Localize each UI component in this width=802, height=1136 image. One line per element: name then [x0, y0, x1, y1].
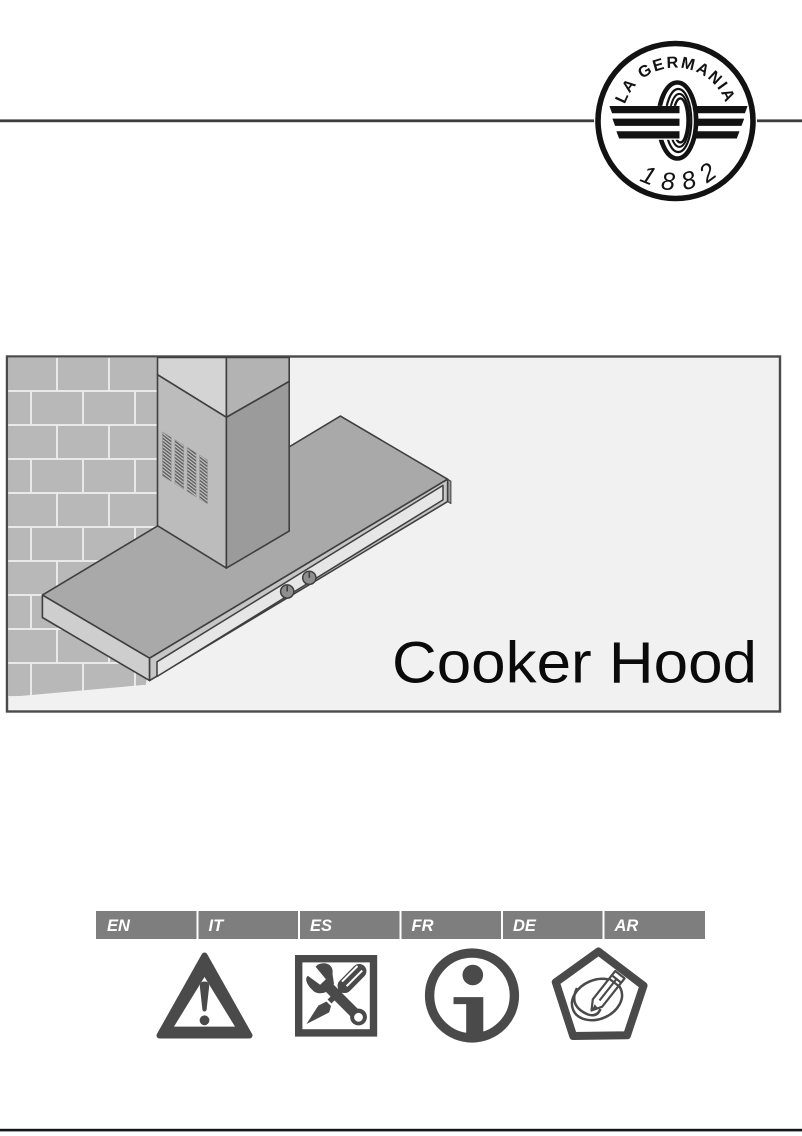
svg-text:AR: AR	[614, 917, 639, 935]
svg-text:DE: DE	[513, 917, 537, 935]
svg-text:ES: ES	[310, 917, 332, 935]
svg-text:EN: EN	[107, 917, 131, 935]
svg-text:Cooker Hood: Cooker Hood	[392, 631, 757, 696]
svg-text:IT: IT	[209, 917, 226, 935]
svg-text:FR: FR	[412, 917, 434, 935]
